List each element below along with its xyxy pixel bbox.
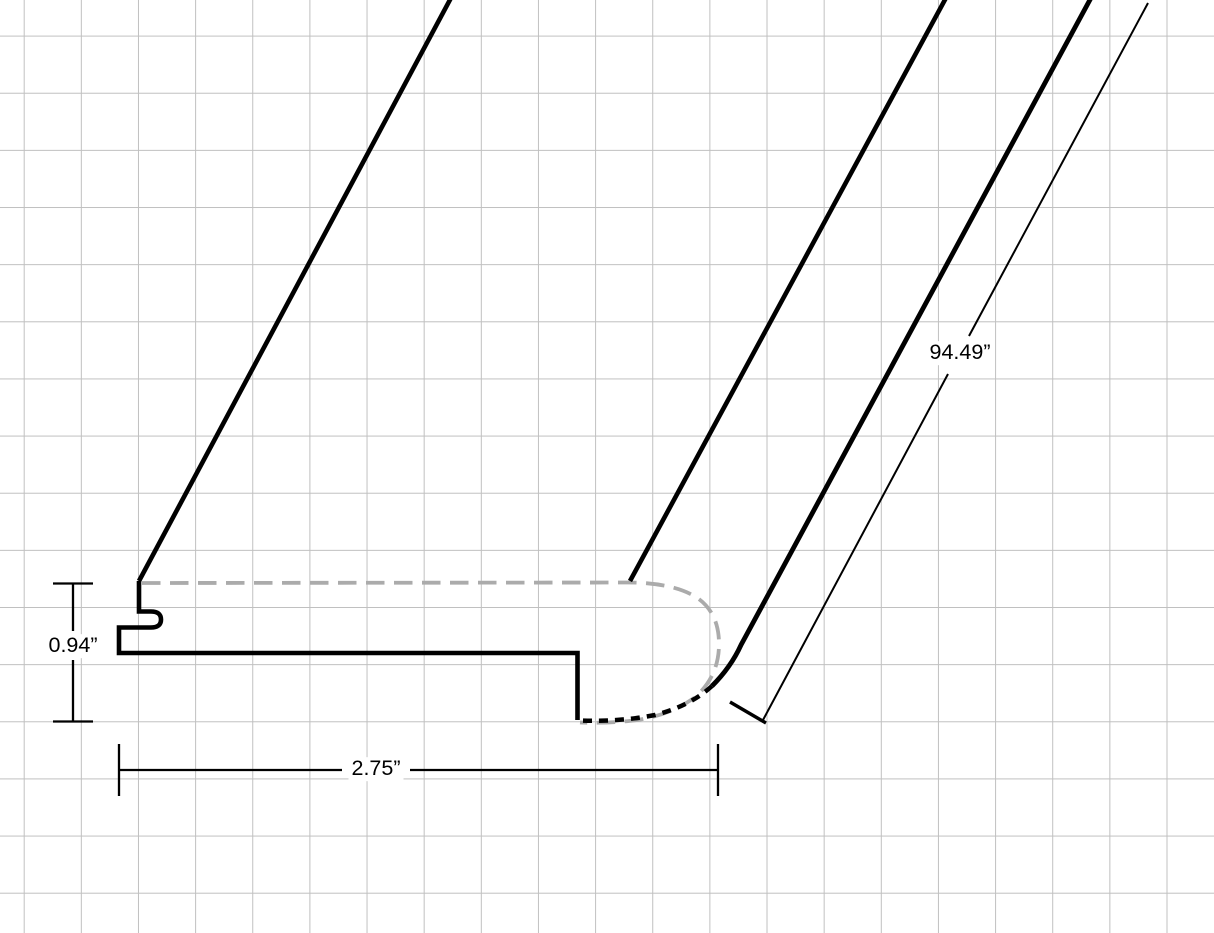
width-dimension-label: 2.75” [348,757,403,781]
front-bottom-long-edge [712,0,1092,686]
length-dimension-tick [730,702,766,723]
drawing-canvas: 0.94” 2.75” 94.49” [0,0,1214,933]
length-dimension-label: 94.49” [927,341,994,365]
width-dimension-line [119,744,718,796]
nose-bottom-hidden-edge [578,686,712,721]
thickness-dimension-label: 0.94” [45,634,100,658]
profile-outline [119,581,578,720]
middle-long-edge [630,0,947,581]
stair-nose-profile-drawing [0,0,1214,933]
left-long-edge [139,0,452,581]
